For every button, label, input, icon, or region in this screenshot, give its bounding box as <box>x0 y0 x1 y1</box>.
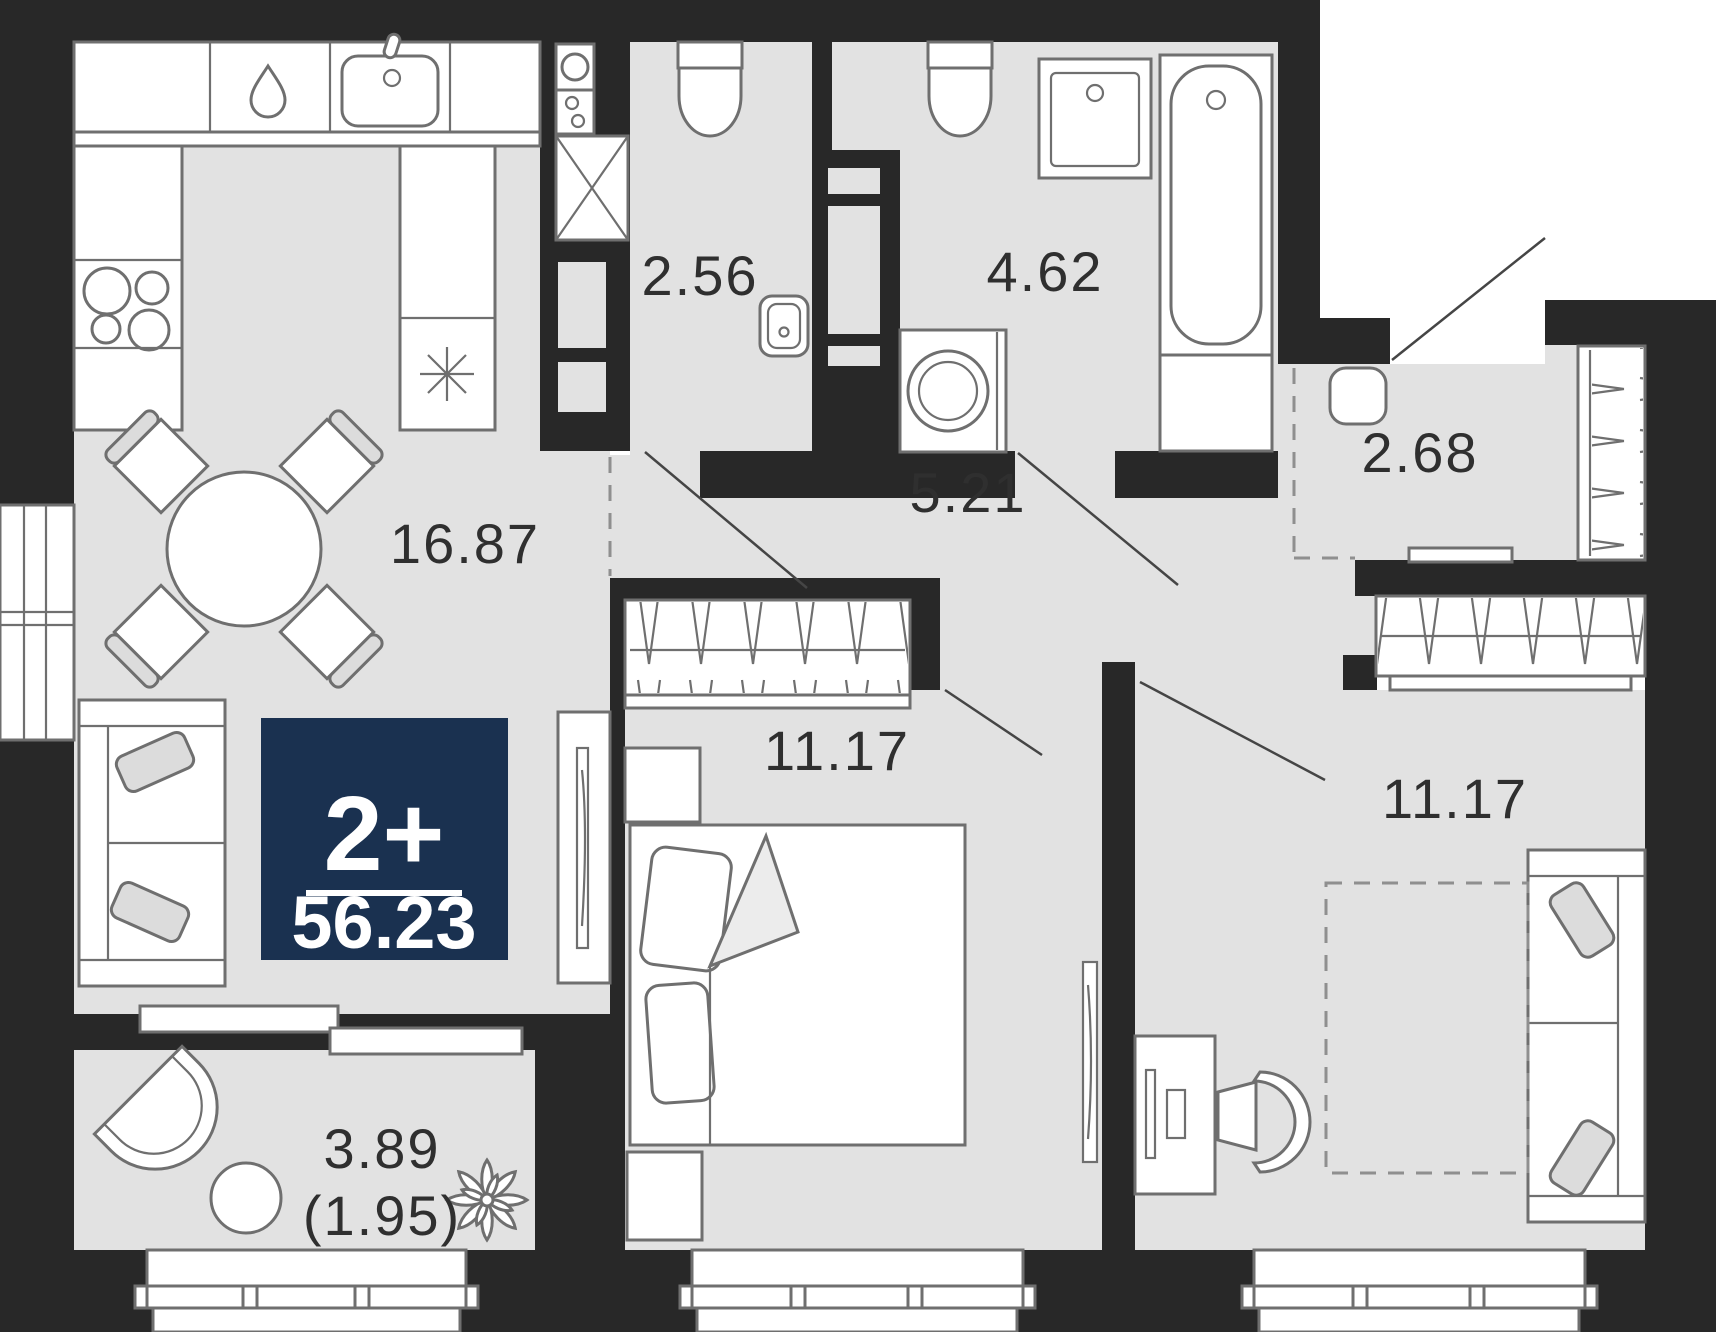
wall-post-bedroom-main <box>910 600 940 690</box>
living-sofa <box>79 700 225 986</box>
wall-post-bedroom-second <box>1343 655 1377 690</box>
label-bedroom-second: 11.17 <box>1382 767 1528 830</box>
label-bedroom-main: 11.17 <box>764 719 910 782</box>
toilet-bowl <box>679 68 741 136</box>
shaft-inset <box>828 168 880 194</box>
snowflake-icon <box>420 347 474 401</box>
badge-total-area: 56.23 <box>291 881 476 964</box>
window-living-left <box>0 505 74 740</box>
apartment-badge: 2+ 56.23 <box>261 718 508 964</box>
toilet-tank <box>678 42 742 68</box>
wall-entry-top <box>1278 318 1390 364</box>
desk-chair <box>1218 1082 1256 1150</box>
wall-wc-bath-thin <box>812 42 832 152</box>
label-bathroom: 4.62 <box>987 240 1104 303</box>
kitchen-counter-edge <box>74 132 540 146</box>
bedroom-main-doorway <box>940 582 1102 600</box>
toilet-bowl <box>929 68 991 136</box>
nightstand <box>627 1152 702 1240</box>
label-balcony: 3.89 <box>324 1117 441 1180</box>
balcony-table <box>211 1163 281 1233</box>
entry-wardrobe <box>1578 346 1645 560</box>
window-bedroom-main <box>680 1250 1035 1332</box>
window-balcony <box>135 1250 478 1332</box>
tv-console-living <box>558 712 610 983</box>
label-balcony-secondary: (1.95) <box>303 1184 461 1247</box>
shaft-inset <box>558 262 606 348</box>
sofa-bedroom-second <box>1528 850 1645 1222</box>
bedroom-second-doorway <box>1102 582 1376 690</box>
wall-bath-bottom-right <box>1115 451 1278 498</box>
shaft-inset <box>558 362 606 412</box>
window-bedroom-second <box>1242 1250 1597 1332</box>
wall-top <box>0 0 1320 42</box>
bed-pillow <box>645 982 715 1104</box>
bathtub <box>1160 55 1272 451</box>
label-entry: 2.68 <box>1362 421 1479 484</box>
wall-bedroom-main-top <box>610 578 940 600</box>
shaft-inset <box>828 206 880 334</box>
wall-wc-bottom <box>700 451 812 498</box>
dining-table <box>167 472 321 626</box>
wall-mass-balcony-bedroom <box>535 1014 625 1332</box>
wall-right <box>1645 300 1716 1332</box>
tv-bedroom-main <box>1083 962 1097 1162</box>
badge-rooms-count: 2+ <box>324 775 445 893</box>
wall-between-bedrooms <box>1102 662 1135 1290</box>
monitor-icon <box>1146 1070 1155 1158</box>
wall-entry-bottom <box>1355 560 1645 596</box>
entry-shelf <box>1409 548 1512 562</box>
wall-bath-right <box>1278 42 1320 318</box>
double-bed <box>630 825 965 1145</box>
wardrobe-bedroom-main <box>625 600 910 708</box>
washing-machine <box>900 330 1006 452</box>
floor-plan-page: 16.87 2.56 4.62 5.21 2.68 11.17 11.17 3.… <box>0 0 1716 1332</box>
nightstand <box>625 748 700 822</box>
floor-plan: 16.87 2.56 4.62 5.21 2.68 11.17 11.17 3.… <box>0 0 1716 1332</box>
wardrobe-bedroom-second <box>1376 596 1645 690</box>
label-kitchen-living: 16.87 <box>390 512 540 575</box>
label-toilet: 2.56 <box>642 244 759 307</box>
shaft-inset <box>828 346 880 366</box>
door-swing-entrance <box>1392 238 1545 360</box>
kitchen-counter-top <box>74 42 540 132</box>
kitchen-counter-left <box>74 146 182 430</box>
toilet-tank <box>928 42 992 68</box>
bath-vanity-sink <box>1039 59 1151 178</box>
label-hallway: 5.21 <box>910 461 1027 524</box>
pouf <box>1330 368 1386 424</box>
